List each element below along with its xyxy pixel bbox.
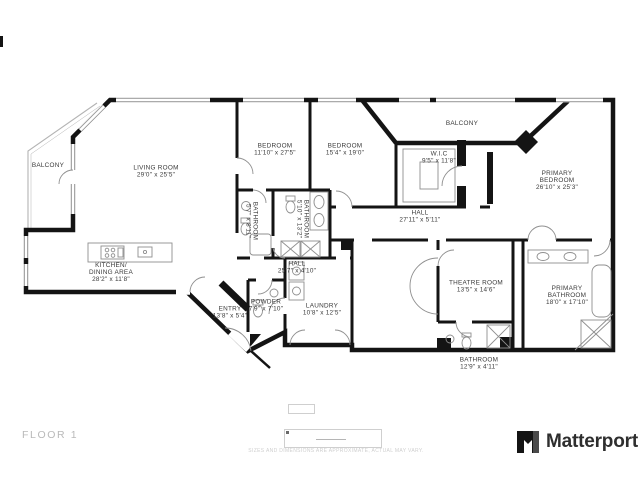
brand-lockup: Matterport (517, 431, 638, 453)
room-label-bedroom-1: BEDROOM11'10" x 27'5" (254, 143, 296, 157)
room-label-theatre-room: THEATRE ROOM13'5" x 14'6" (449, 280, 503, 294)
kitchen-island (88, 243, 172, 262)
scale-bar-line (316, 439, 346, 440)
room-label-bathroom-small-1: BATHROOM5'7" x 8'11" (245, 202, 259, 240)
room-label-primary-bedroom: PRIMARYBEDROOM26'10" x 25'3" (536, 170, 578, 191)
floorplan-svg: BALCONYLIVING ROOM29'0" x 25'5"BEDROOM11… (0, 0, 640, 480)
brand-name: Matterport (546, 431, 638, 453)
scale-bar-small (288, 404, 315, 414)
room-label-balcony-top: BALCONY (446, 120, 479, 127)
room-label-powder: POWDER7'9" x 7'10" (249, 299, 284, 313)
room-label-bathroom-bottom: BATHROOM12'9" x 4'11" (460, 357, 498, 371)
room-label-living-room: LIVING ROOM29'0" x 25'5" (133, 165, 178, 179)
matterport-m-icon (517, 431, 539, 453)
room-label-laundry: LAUNDRY10'8" x 12'5" (303, 303, 341, 317)
floor-label: FLOOR 1 (22, 429, 78, 441)
room-label-bathroom-small-2: BATHROOM5'10" x 13'2" (296, 200, 310, 238)
room-label-bedroom-2: BEDROOM15'4" x 19'0" (326, 143, 364, 157)
scale-bar-large (284, 429, 382, 448)
disclaimer-text: SIZES AND DIMENSIONS ARE APPROXIMATE, AC… (166, 448, 506, 454)
room-label-balcony-left: BALCONY (32, 162, 65, 169)
scale-bar-dot (286, 431, 289, 434)
floorplan-canvas: BALCONYLIVING ROOM29'0" x 25'5"BEDROOM11… (0, 0, 640, 480)
room-label-kitchen-dining: KITCHEN/DINING AREA28'2" x 11'8" (89, 262, 133, 283)
room-label-primary-bathroom: PRIMARYBATHROOM18'0" x 17'10" (546, 285, 588, 306)
